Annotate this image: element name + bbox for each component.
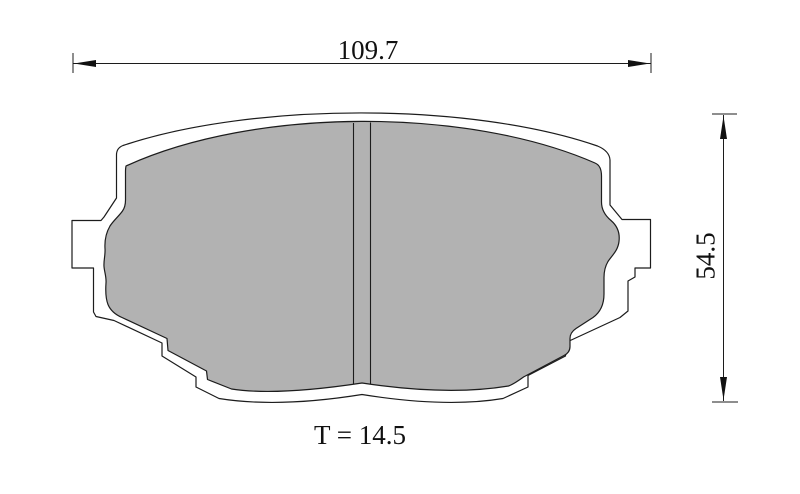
width-dim-arrow-left-icon — [74, 60, 96, 67]
width-dimension-label: 109.7 — [338, 37, 399, 64]
technical-drawing-canvas: 109.7 54.5 T = 14.5 — [0, 0, 800, 494]
pad-friction-surface — [104, 121, 619, 391]
height-dim-arrow-bottom-icon — [720, 377, 727, 400]
height-dim-arrow-top-icon — [720, 116, 727, 139]
width-dim-arrow-right-icon — [628, 60, 650, 67]
thickness-label: T = 14.5 — [314, 422, 406, 449]
height-dimension-label: 54.5 — [693, 232, 720, 279]
